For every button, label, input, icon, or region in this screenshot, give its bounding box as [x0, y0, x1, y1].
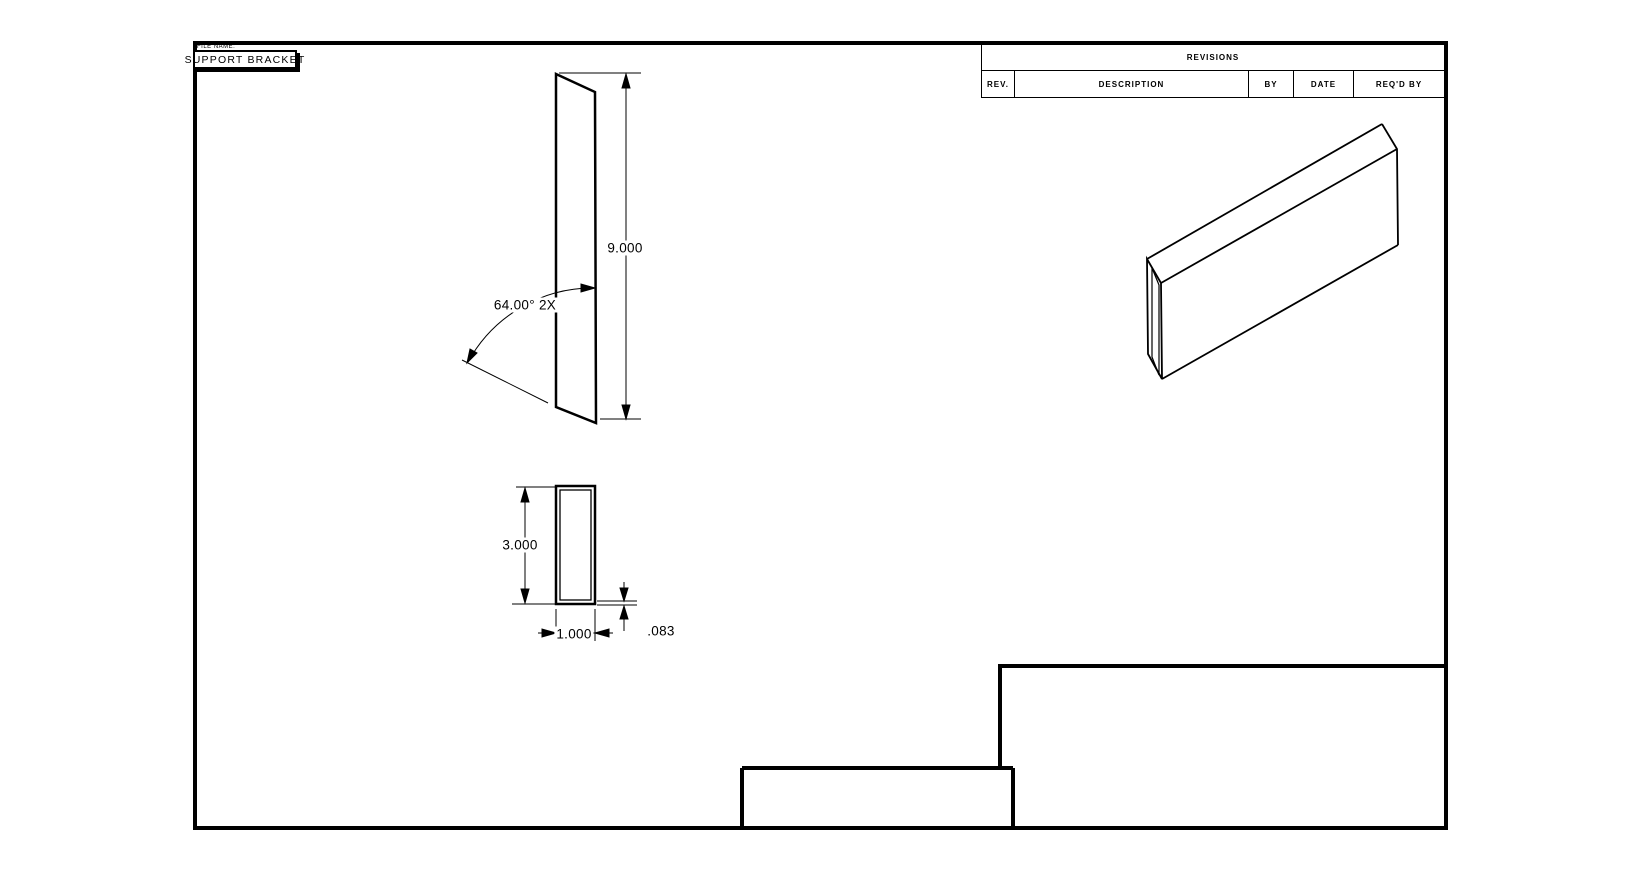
arrowhead-icon — [622, 74, 630, 88]
section-view — [512, 486, 637, 641]
revisions-col-date: DATE — [1294, 71, 1354, 98]
drawing-canvas — [0, 0, 1635, 881]
revisions-header-row: REV. DESCRIPTION BY DATE REQ'D BY — [982, 71, 1444, 98]
revisions-col-by: BY — [1249, 71, 1294, 98]
arrowhead-icon — [521, 589, 529, 603]
revisions-table-title: REVISIONS — [982, 45, 1444, 71]
iso-top-near-edge — [1161, 149, 1397, 283]
front-view-outline — [556, 74, 596, 423]
iso-top-far-edge — [1147, 124, 1382, 259]
revisions-col-description: DESCRIPTION — [1015, 71, 1249, 98]
arrowhead-icon — [467, 349, 477, 363]
angle-reference-line — [462, 360, 548, 403]
arrowhead-icon — [622, 405, 630, 419]
title-block-outline — [742, 666, 1446, 828]
revisions-table: REVISIONS REV. DESCRIPTION BY DATE REQ'D… — [981, 45, 1444, 98]
part-title: SUPPORT BRACKET — [185, 54, 306, 66]
arrowhead-icon — [620, 588, 628, 601]
drawing-sheet-page: FILE NAME: SUPPORT BRACKET REVISIONS REV… — [0, 0, 1635, 881]
wall-thickness-dimension — [597, 582, 637, 631]
iso-end-face — [1147, 259, 1162, 379]
iso-right-end-edges — [1382, 124, 1398, 245]
arrowhead-icon — [521, 488, 529, 502]
section-outer-wall — [556, 486, 595, 604]
title-block: SUPPORT BRACKET — [193, 50, 297, 69]
dimension-front-height: 9.000 — [605, 241, 644, 256]
arrowhead-icon — [620, 606, 628, 619]
isometric-view — [1147, 124, 1398, 379]
iso-bottom-edge — [1162, 245, 1398, 379]
dimension-profile-height: 3.000 — [500, 538, 539, 553]
arrowhead-icon — [595, 629, 609, 637]
dimension-wall-thickness: .083 — [645, 624, 676, 639]
revisions-col-reqd-by: REQ'D BY — [1354, 71, 1444, 98]
dimension-bend-angle: 64.00° 2X — [492, 298, 558, 313]
revisions-col-rev: REV. — [982, 71, 1015, 98]
dimension-profile-width: 1.000 — [554, 627, 593, 642]
